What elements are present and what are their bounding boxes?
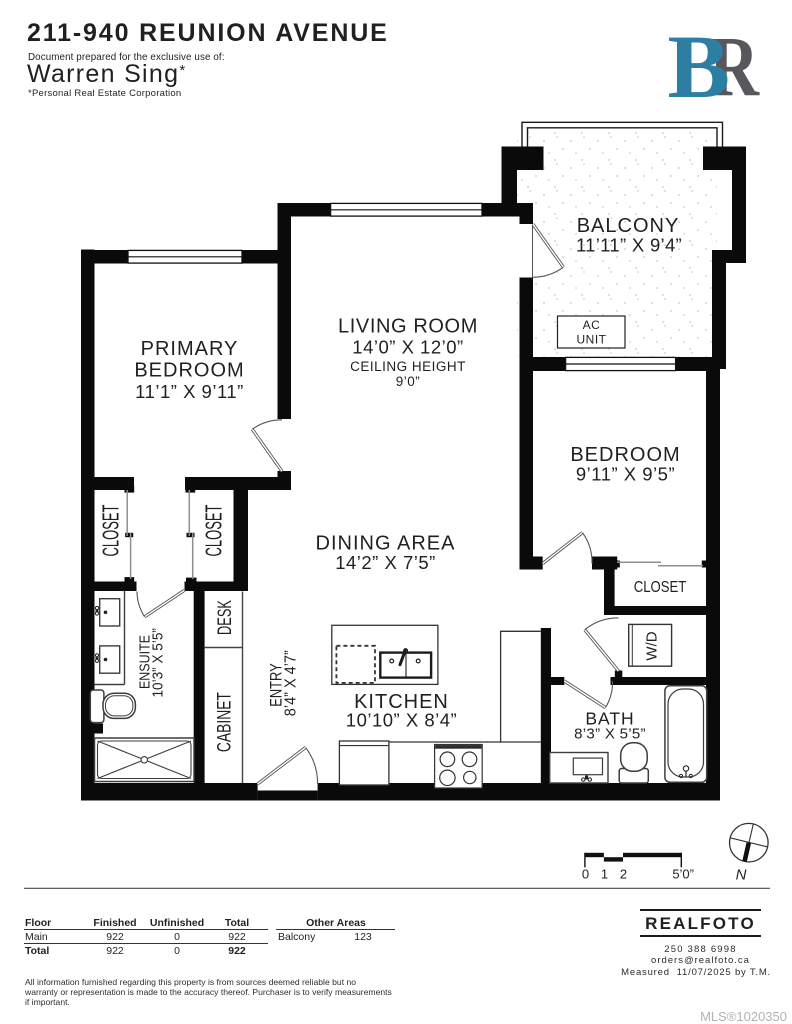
svg-text:N: N <box>736 867 747 884</box>
svg-text:2: 2 <box>620 867 627 882</box>
svg-text:1: 1 <box>601 867 608 882</box>
svg-text:0: 0 <box>582 867 589 882</box>
svg-text:5’0”: 5’0” <box>672 867 694 882</box>
